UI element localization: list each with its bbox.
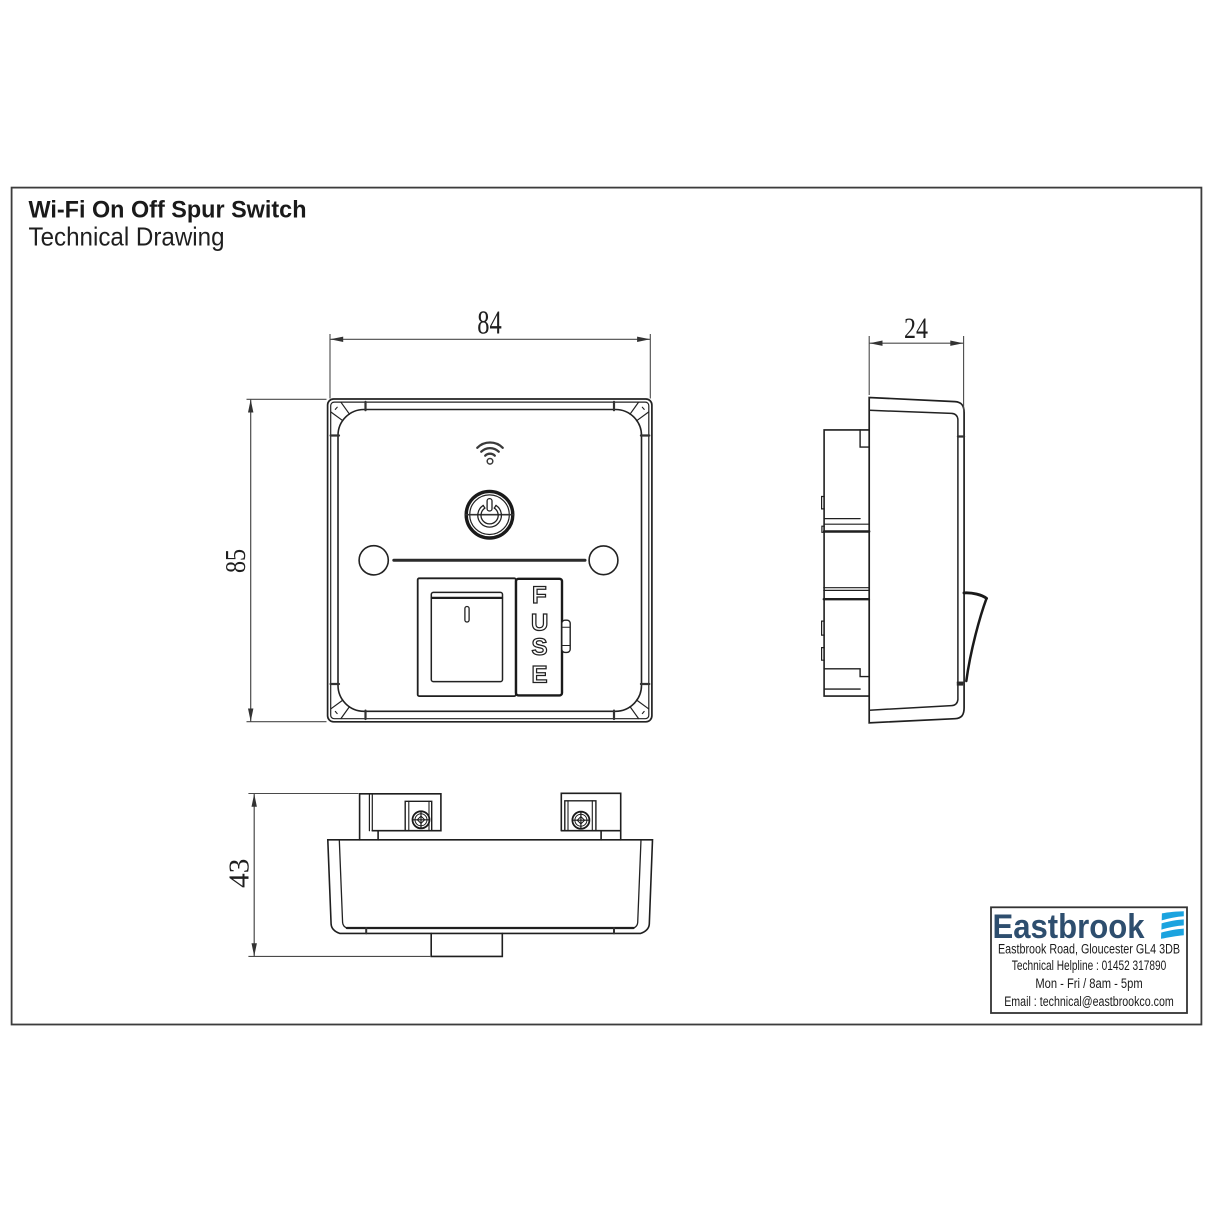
- svg-text:Mon - Fri / 8am - 5pm: Mon - Fri / 8am - 5pm: [1035, 976, 1142, 991]
- svg-text:Eastbrook: Eastbrook: [993, 908, 1146, 946]
- svg-text:Wi-Fi On Off Spur Switch: Wi-Fi On Off Spur Switch: [29, 197, 307, 224]
- svg-text:Eastbrook Road, Gloucester GL4: Eastbrook Road, Gloucester GL4 3DB: [998, 942, 1180, 957]
- svg-text:U: U: [531, 609, 548, 636]
- svg-text:Technical Drawing: Technical Drawing: [29, 222, 225, 252]
- svg-text:24: 24: [904, 311, 928, 344]
- svg-text:Email : technical@eastbrookco.: Email : technical@eastbrookco.com: [1004, 994, 1174, 1009]
- svg-text:F: F: [532, 582, 547, 609]
- svg-text:85: 85: [220, 549, 251, 573]
- svg-text:Technical Helpline : 01452 317: Technical Helpline : 01452 317890: [1012, 958, 1166, 973]
- svg-text:E: E: [531, 662, 547, 689]
- svg-text:84: 84: [477, 305, 502, 342]
- svg-text:43: 43: [224, 859, 255, 888]
- svg-text:S: S: [531, 634, 547, 661]
